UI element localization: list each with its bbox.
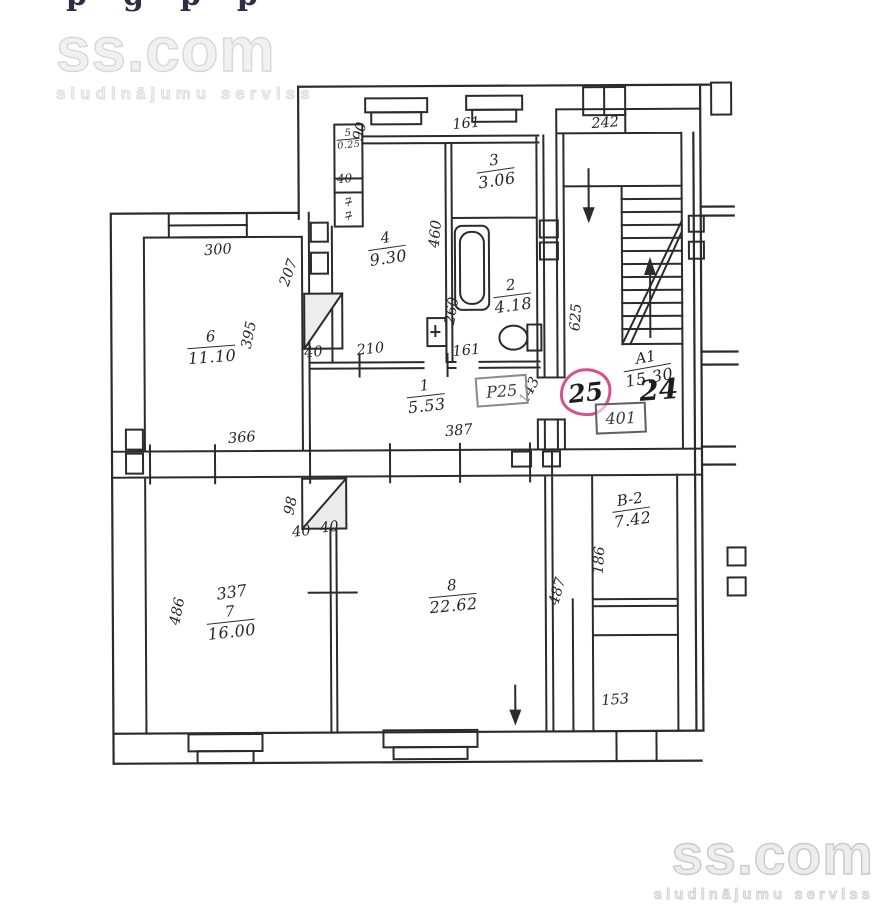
dim-161-bath: 161 xyxy=(452,342,481,360)
entry-stamp-text: P25 xyxy=(485,380,517,401)
landing-stamp-text: 401 xyxy=(605,408,636,428)
dim-40-right: 40 xyxy=(319,519,339,537)
room-6-label: 6 11.10 xyxy=(186,327,237,368)
room-7-label: 7 16.00 xyxy=(205,601,257,644)
dim-186: 186 xyxy=(591,546,609,575)
landing-stamp-401: 401 xyxy=(595,402,647,435)
room-8-label: 8 22.62 xyxy=(427,575,479,617)
dim-387: 387 xyxy=(444,422,473,440)
dim-161-top: 161 xyxy=(452,115,481,133)
entry-stamp-p25: P25 xyxy=(475,374,529,408)
dim-366: 366 xyxy=(228,429,257,447)
dim-40-closet: 40 xyxy=(337,171,353,186)
room-5-area: 0.25 xyxy=(337,139,361,152)
interior-walls xyxy=(110,109,703,764)
dim-242: 242 xyxy=(591,114,620,132)
dim-625: 625 xyxy=(567,303,585,332)
room-2-label: 2 4.18 xyxy=(491,275,533,317)
scanned-floor-plan-page: pgpp ss.com sludinājumu serviss ss.com s… xyxy=(0,0,890,910)
toilet xyxy=(499,326,527,350)
dim-300: 300 xyxy=(204,241,233,259)
room-4-label: 4 9.30 xyxy=(366,227,409,270)
floor-plan-linework xyxy=(0,0,890,910)
dim-40-left: 40 xyxy=(291,523,311,541)
room-1-label: 1 5.53 xyxy=(405,375,447,417)
neighbor-wall-stubs xyxy=(701,206,738,464)
closet-and-flue-boxes xyxy=(300,122,745,597)
room-3-label: 3 3.06 xyxy=(474,149,517,192)
dim-210: 210 xyxy=(356,340,385,359)
room-1-area: 5.53 xyxy=(407,394,447,417)
dim-153: 153 xyxy=(601,691,630,709)
floor-plan-drawing: 5 0.25 3 3.06 4 9.30 2 4.18 6 11.10 1 5.… xyxy=(0,0,890,910)
dim-460: 460 xyxy=(427,219,446,248)
room-6-area: 11.10 xyxy=(187,345,237,368)
dim-40-upper-flue: 40 xyxy=(304,344,324,362)
room-b2-label: B-2 7.42 xyxy=(610,489,653,532)
